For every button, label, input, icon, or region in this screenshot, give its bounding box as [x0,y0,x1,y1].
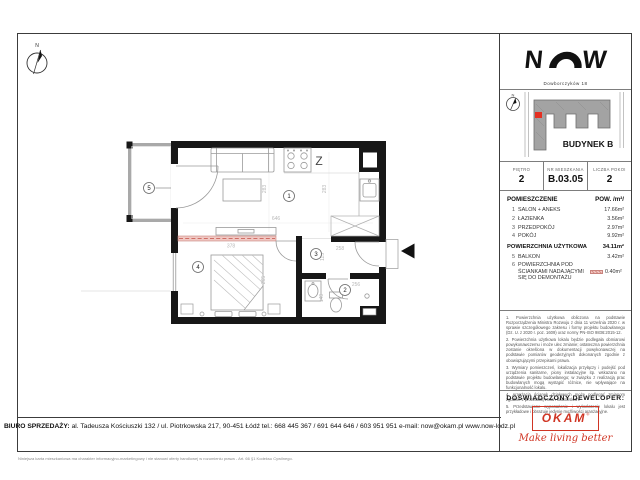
rooms-header-area: POW. /m²/ [595,196,624,203]
floor-label: PIĘTRO [513,167,530,172]
sales-office-bar: BIURO SPRZEDAŻY: al. Tadeusza Kościuszki… [18,417,501,435]
legal-paragraph: 1. Powierzchnia użytkowa obliczona na po… [506,315,625,335]
apartment-card-page: N [0,0,640,480]
dim-living-depth-left: 283 [262,185,268,194]
usable-area-total-row: POWIERZCHNIA UŻYTKOWA 34.11m² [507,244,624,250]
logo-letter-w: W [580,46,607,74]
floor-drain [365,294,369,298]
rooms-table-header: POMIESZCZENIE POW. /m²/ [507,196,624,203]
now-logo: N W [514,40,618,78]
room-badge-5: 5 [144,183,155,194]
unit-number-value: B.03.05 [548,174,583,185]
sidebar: N W Dowborczyków 18 N [499,34,631,451]
room-row-demountable-walls: 6 POWIERZCHNIA POD ŚCIANKAMI NADAJĄCYMI … [507,262,624,281]
entrance-threshold [386,240,398,269]
logo-letter-n: N [523,46,544,74]
room-row-salon: 1 SALON + ANEKS 17.66m² [507,207,624,213]
bed [211,255,263,317]
brand-subtitle: Dowborczyków 18 [500,81,631,86]
sofa [211,148,274,172]
site-compass-icon: N [507,93,520,111]
stove-icon [284,148,311,172]
balcony-door [176,166,218,208]
room-badge-4: 4 [193,262,204,273]
legal-paragraph: 3. Wymiary pomieszczeń, lokalizacja przy… [506,365,625,390]
room-badge-1: 1 [284,191,295,202]
dim-living-depth-right: 283 [322,185,328,194]
shaft [359,148,381,172]
room-badge-3: 3 [311,249,322,260]
developer-heading: DOŚWIADCZONY DEWELOPER: [500,395,631,402]
okam-logo: OKAM® [532,406,600,431]
wardrobe [331,216,379,236]
entrance-arrow-icon [401,244,415,259]
brand-logo-section: N W Dowborczyków 18 [500,34,631,90]
exterior-walls [171,141,386,324]
site-compass-n: N [512,93,515,98]
dim-bedroom-depth: 265 [261,276,267,285]
floor-plan-area: N [18,34,500,435]
unit-info-table: PIĘTRO 2 NR MIESZKANIA B.03.05 LICZBA PO… [500,162,631,191]
balcony [127,142,172,223]
building-label: BUDYNEK B [563,139,614,149]
site-map: N BUDYNEK [500,90,631,161]
room-row-pokoj: 4 POKÓJ 9.92m² [507,233,624,239]
dim-bedroom-width: 378 [227,244,236,250]
room-row-przedpokoj: 3 PRZEDPOKÓJ 2.97m² [507,225,624,231]
unit-number-label: NR MIESZKANIA [547,167,583,172]
legal-text: 1. Powierzchnia użytkowa obliczona na po… [500,311,631,391]
info-col-unit-number: NR MIESZKANIA B.03.05 [544,162,588,190]
dim-bath-depth: 149 [319,294,325,303]
washer-niche [360,306,379,317]
sales-office-info: al. Tadeusza Kościuszki 132 / ul. Piotrk… [72,423,515,430]
demountable-wall-swatch [590,270,603,274]
bedroom-door [276,241,296,261]
okam-tagline: Make living better [500,433,631,444]
room-count-label: LICZBA POKOI [593,167,625,172]
balcony-door-opening [171,164,179,208]
kitchen-sink [360,179,379,201]
sales-office-label: BIURO SPRZEDAŻY: [4,423,70,430]
dim-bath-width: 256 [352,282,361,288]
developer-section: DOŚWIADCZONY DEWELOPER: OKAM® Make livin… [500,391,631,447]
logo-arch [552,55,579,68]
kitchen-z-label: Z [315,154,322,168]
dim-living-width: 646 [272,216,281,222]
entrance-opening [379,242,387,267]
demountable-wall [178,236,276,241]
floor-value: 2 [519,174,525,185]
compass-n-label: N [35,43,39,49]
rooms-table: POMIESZCZENIE POW. /m²/ 1 SALON + ANEKS … [500,191,631,311]
room-row-lazienka: 2 ŁAZIENKA 3.56m² [507,216,624,222]
site-map-section: N BUDYNEK [500,90,631,162]
room-row-balkon: 5 BALKON 3.42m² [507,254,624,260]
bedroom-window-opening [171,253,179,291]
dim-hall-width: 258 [336,246,345,252]
disclaimer-text: Niniejsza karta mieszkaniowa ma charakte… [18,456,293,461]
page-frame: N [17,33,632,452]
legal-paragraph: 2. Powierzchnia użytkowa lokalu będzie p… [506,337,625,362]
tv-cabinet [216,228,276,236]
room-badge-2: 2 [340,285,351,296]
entrance-door [355,242,379,266]
compass-icon: N [27,43,47,74]
rooms-header-name: POMIESZCZENIE [507,196,558,203]
unit-marker [535,112,542,118]
info-col-room-count: LICZBA POKOI 2 [588,162,631,190]
info-col-floor: PIĘTRO 2 [500,162,544,190]
coffee-table [223,179,261,201]
room-count-value: 2 [607,174,613,185]
floor-plan: N [18,34,500,435]
